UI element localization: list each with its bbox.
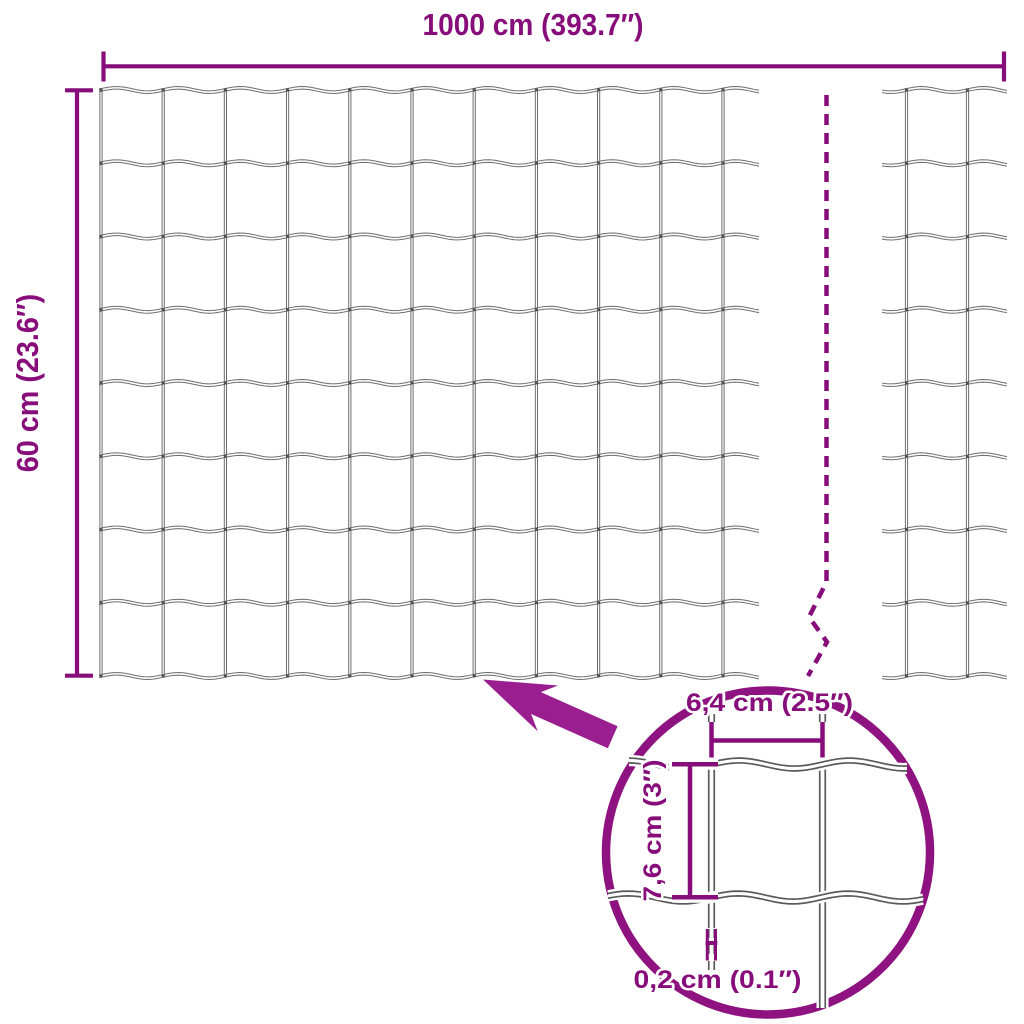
- svg-text:7,6 cm (3″): 7,6 cm (3″): [639, 760, 667, 902]
- svg-text:6,4 cm (2.5″): 6,4 cm (2.5″): [686, 689, 853, 717]
- svg-text:0,2 cm (0.1″): 0,2 cm (0.1″): [634, 966, 802, 994]
- svg-text:60 cm (23.6″): 60 cm (23.6″): [11, 294, 45, 473]
- svg-text:1000 cm (393.7″): 1000 cm (393.7″): [423, 8, 644, 42]
